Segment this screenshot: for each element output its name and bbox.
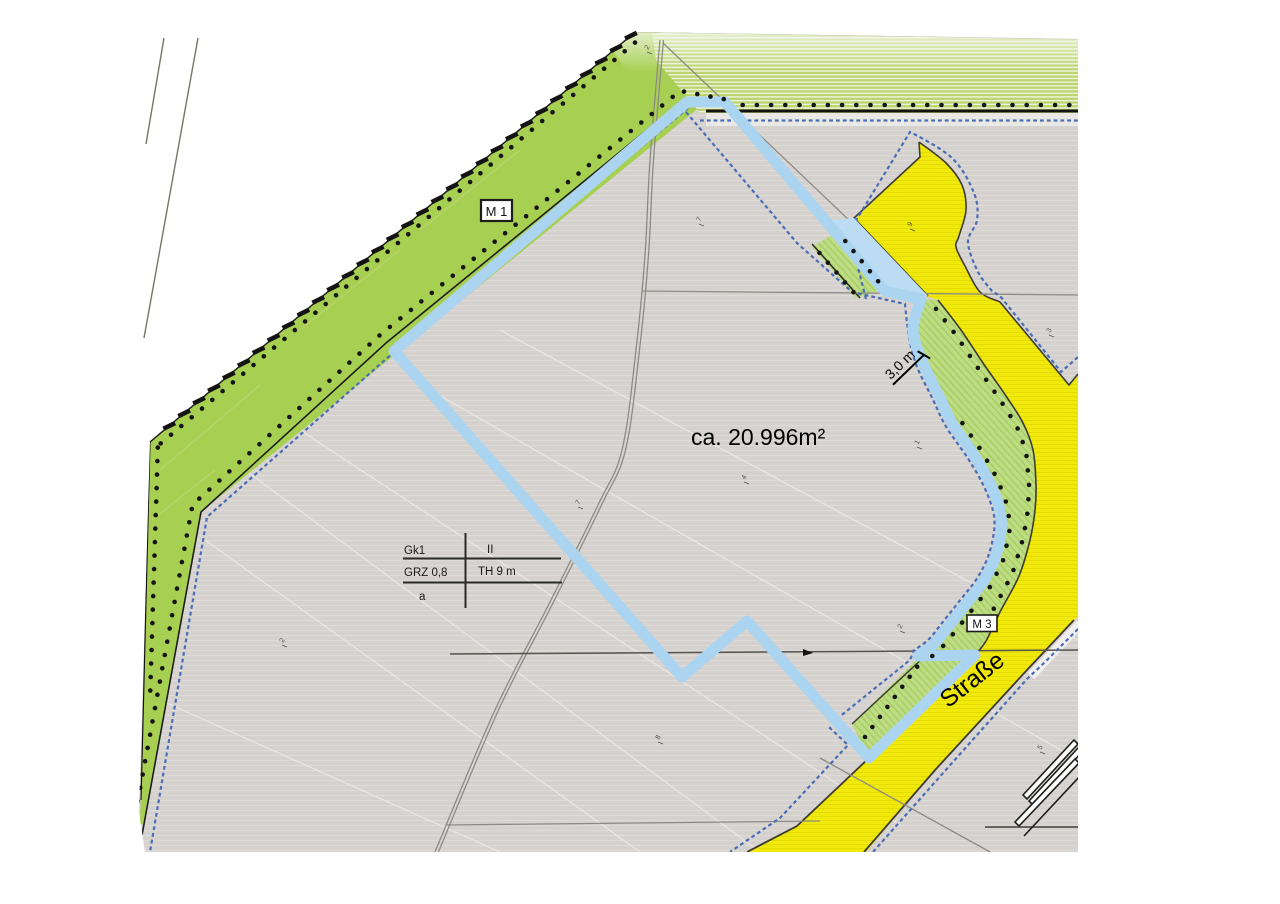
svg-text:M 1: M 1 bbox=[486, 204, 508, 219]
svg-text:GRZ 0,8: GRZ 0,8 bbox=[404, 567, 447, 579]
svg-text:TH 9 m: TH 9 m bbox=[478, 566, 516, 578]
svg-text:M 3: M 3 bbox=[972, 619, 991, 631]
svg-text:Gk1: Gk1 bbox=[404, 545, 425, 557]
svg-text:II: II bbox=[487, 544, 493, 556]
svg-text:ca. 20.996m²: ca. 20.996m² bbox=[691, 424, 826, 450]
svg-text:a: a bbox=[419, 591, 426, 603]
